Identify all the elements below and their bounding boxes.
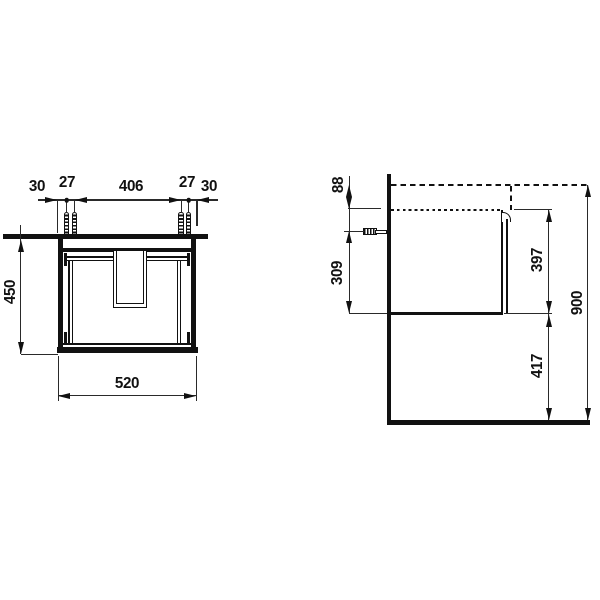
drawer-front-line <box>506 219 508 314</box>
washbasin-top-dashed <box>391 184 588 186</box>
dim-arrow <box>184 393 196 399</box>
dim-arrow <box>346 197 352 209</box>
dim-900: 900 <box>569 290 587 314</box>
drawer-side-line <box>68 260 69 345</box>
dim-arrow <box>75 197 87 203</box>
dim-397: 397 <box>529 248 547 272</box>
dim-450: 450 <box>2 280 20 304</box>
floor-line <box>387 420 591 425</box>
dim-88: 88 <box>330 176 348 192</box>
cabinet-bottom-panel <box>57 347 198 353</box>
washbasin-front-dashed <box>510 186 512 210</box>
drawer-slide-block <box>187 253 190 266</box>
dim-point <box>64 198 69 203</box>
mounting-bolt <box>72 212 78 235</box>
cabinet-inner-bottom-line <box>63 343 191 345</box>
dim-arrow <box>18 342 24 354</box>
wall-line <box>387 174 392 424</box>
dim-arrow <box>585 408 591 420</box>
dim-27-right: 27 <box>178 174 194 192</box>
cabinet-back-edge <box>501 210 503 315</box>
extension-line <box>348 208 381 209</box>
mounting-bolt <box>178 212 184 235</box>
dim-417: 417 <box>529 353 547 377</box>
drawer-side-line <box>177 260 178 345</box>
extension-line <box>349 313 387 314</box>
dim-arrow <box>585 185 591 197</box>
countertop <box>3 234 208 239</box>
dim-arrow <box>45 197 57 203</box>
drawer-side-line <box>180 260 181 345</box>
cabinet-left-wall <box>58 238 63 350</box>
dim-27-left: 27 <box>59 174 75 192</box>
mounting-bolt <box>186 212 192 235</box>
drawer-slide-block <box>187 332 190 345</box>
dim-arrow <box>169 197 181 203</box>
extension-line <box>21 354 58 355</box>
cabinet-top-dotted <box>391 209 502 212</box>
dim-arrow <box>58 393 70 399</box>
dim-arrow <box>546 210 552 222</box>
dim-arrow <box>546 301 552 313</box>
cabinet-bottom-edge <box>391 312 503 315</box>
dim-arrow <box>546 315 552 327</box>
siphon-cutout-inner <box>116 251 143 304</box>
dim-arrow <box>18 240 24 252</box>
dim-point <box>186 198 191 203</box>
drawer-side-line <box>72 260 73 345</box>
dim-520: 520 <box>115 375 139 393</box>
dim-arrow <box>346 231 352 243</box>
cabinet-right-wall <box>191 238 196 350</box>
drawer-slide-block <box>64 253 67 266</box>
dim-line <box>58 395 196 396</box>
extension-line <box>57 200 58 233</box>
wall-bracket-shaft <box>375 230 387 234</box>
dim-line <box>587 185 588 420</box>
mounting-bolt <box>64 212 70 235</box>
dim-arrow <box>546 408 552 420</box>
dim-309: 309 <box>329 261 347 285</box>
dim-arrow <box>346 301 352 313</box>
drawer-slide-block <box>64 332 67 345</box>
technical-drawing: 30 27 406 27 30 450 520 <box>0 0 600 600</box>
extension-line <box>196 200 197 226</box>
dim-30-right: 30 <box>200 178 216 196</box>
dim-406: 406 <box>119 178 143 196</box>
dim-30-left: 30 <box>28 178 44 196</box>
dim-arrow <box>197 197 209 203</box>
